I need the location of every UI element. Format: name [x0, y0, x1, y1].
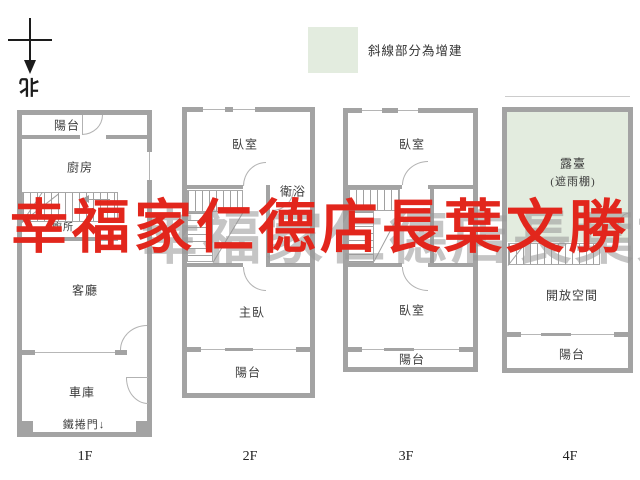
floor-plan-1f: 陽台 廚房 廁所 客廳 車庫 鐵捲門↓ — [17, 110, 152, 437]
wall — [225, 348, 253, 351]
room-label-balcony-1f: 陽台 — [54, 117, 80, 134]
wall — [106, 135, 147, 139]
room-label-bedroom-front: 臥室 — [399, 136, 425, 153]
room-label-open-space: 開放空間 — [546, 287, 598, 304]
room-label-bedroom-rear: 臥室 — [399, 302, 425, 319]
wall — [507, 332, 521, 337]
watermark-text: 幸福家仁德店長葉文勝 — [10, 198, 630, 256]
room-label-garage: 車庫 — [69, 384, 95, 401]
door-arc — [402, 161, 428, 185]
legend-note: 斜線部分為增建 — [368, 40, 463, 59]
wall — [22, 350, 35, 355]
window — [203, 107, 225, 112]
room-label-terrace-note: (遮雨棚) — [550, 173, 595, 189]
floor-label-1f: 1F — [78, 449, 93, 465]
room-label-master-bedroom: 主臥 — [239, 304, 265, 321]
room-label-kitchen: 廚房 — [67, 159, 93, 176]
floorplan-image: 北 斜線部分為增建 陽台 廚房 廁所 客廳 車庫 鐵捲門↓ — [0, 0, 640, 480]
wall — [428, 185, 473, 189]
room-label-balcony-2f: 陽台 — [235, 364, 261, 381]
roof-edge-line — [505, 96, 630, 97]
window — [362, 108, 382, 113]
room-label-living-room: 客廳 — [72, 282, 98, 299]
window — [398, 108, 418, 113]
room-label-roller-door: 鐵捲門↓ — [63, 416, 106, 432]
window — [233, 107, 255, 112]
compass-arrowhead-icon — [24, 60, 36, 74]
wall — [296, 347, 310, 352]
floor-label-2f: 2F — [243, 449, 258, 465]
legend-addition-swatch — [308, 27, 358, 73]
compass-north-label: 北 — [19, 74, 39, 103]
floor-label-4f: 4F — [563, 449, 578, 465]
wall — [459, 347, 473, 352]
room-label-balcony-4f: 陽台 — [559, 346, 585, 363]
compass-horizontal-line — [8, 39, 52, 41]
wall — [187, 347, 201, 352]
room-label-balcony-3f: 陽台 — [399, 351, 425, 368]
door-arc — [243, 162, 266, 186]
room-label-terrace: 露臺 — [560, 155, 586, 172]
wall-corner — [136, 421, 147, 432]
wall — [187, 185, 243, 189]
room-label-bedroom-2f: 臥室 — [232, 136, 258, 153]
wall-corner — [22, 421, 33, 432]
wall — [541, 333, 571, 336]
wall — [35, 352, 115, 353]
window — [147, 152, 152, 180]
door-arc — [120, 325, 147, 350]
wall — [22, 135, 80, 139]
floor-label-3f: 3F — [399, 449, 414, 465]
door-arc — [126, 378, 148, 404]
door-arc — [82, 115, 103, 135]
wall — [115, 350, 127, 355]
wall — [348, 347, 362, 352]
wall — [614, 332, 628, 337]
